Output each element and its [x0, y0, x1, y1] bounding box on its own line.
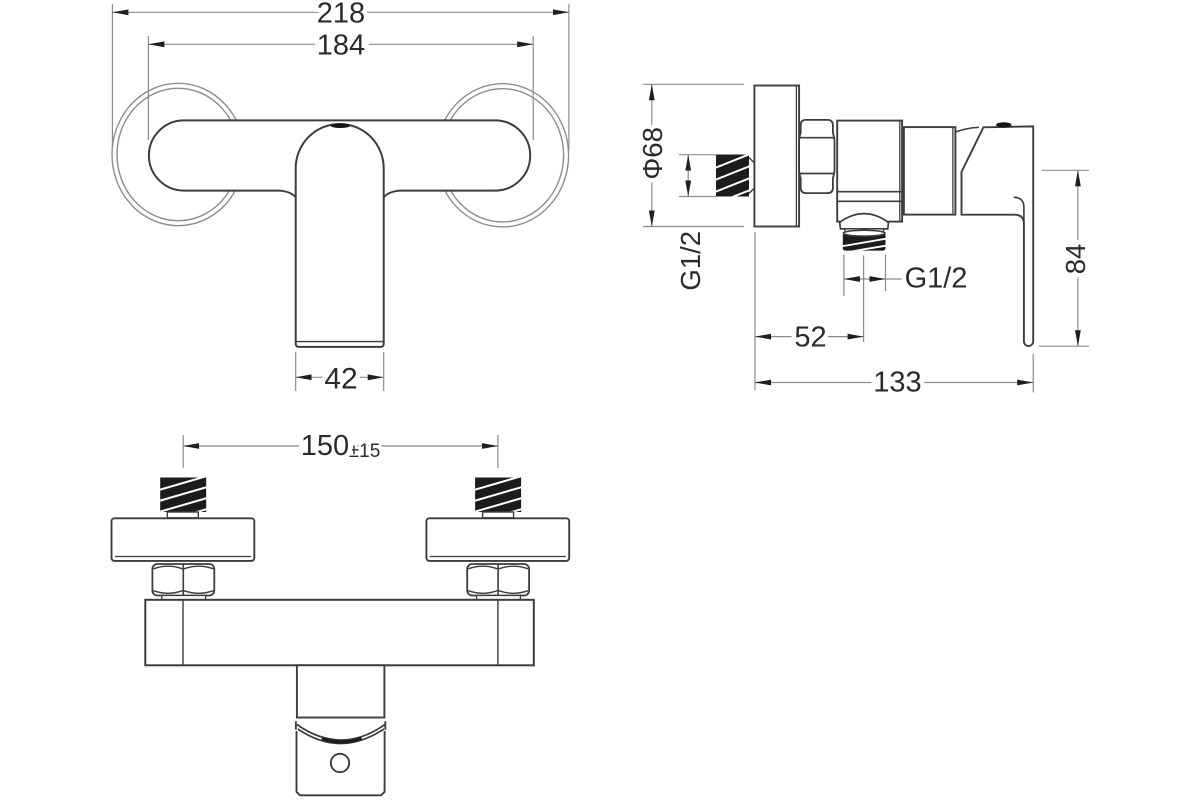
svg-text:G1/2: G1/2 — [675, 231, 706, 291]
svg-text:42: 42 — [324, 362, 357, 395]
svg-text:184: 184 — [317, 30, 365, 62]
svg-text:G1/2: G1/2 — [905, 263, 968, 295]
svg-text:±15: ±15 — [349, 441, 381, 462]
svg-text:Φ68: Φ68 — [637, 127, 668, 180]
svg-text:218: 218 — [317, 0, 365, 30]
svg-text:150: 150 — [301, 430, 349, 462]
svg-text:133: 133 — [873, 367, 921, 399]
svg-text:52: 52 — [794, 322, 826, 354]
svg-text:84: 84 — [1060, 244, 1091, 275]
